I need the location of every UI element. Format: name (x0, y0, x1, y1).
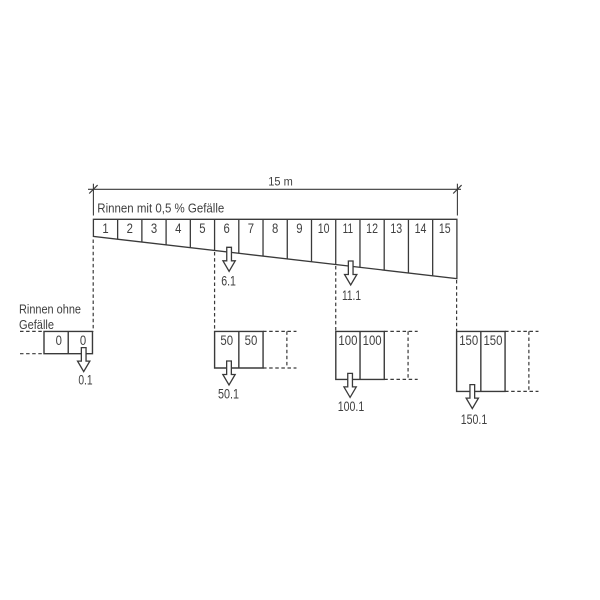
svg-text:150: 150 (459, 333, 478, 348)
svg-text:1: 1 (102, 221, 108, 236)
svg-text:7: 7 (248, 221, 254, 236)
svg-text:150: 150 (483, 333, 502, 348)
svg-text:11: 11 (343, 221, 354, 236)
svg-text:4: 4 (175, 221, 182, 236)
svg-text:15 m: 15 m (268, 175, 293, 189)
svg-text:10: 10 (318, 221, 330, 236)
svg-text:15: 15 (439, 221, 451, 236)
svg-text:Rinnen ohne: Rinnen ohne (19, 302, 81, 317)
svg-text:150.1: 150.1 (461, 412, 488, 427)
svg-text:100: 100 (363, 333, 382, 348)
svg-text:50.1: 50.1 (218, 387, 239, 402)
svg-text:Gefälle: Gefälle (19, 317, 54, 332)
svg-text:5: 5 (199, 221, 205, 236)
svg-text:6: 6 (224, 221, 230, 236)
svg-text:50: 50 (245, 333, 258, 348)
svg-text:100: 100 (338, 333, 357, 348)
svg-text:14: 14 (415, 221, 427, 236)
svg-text:6.1: 6.1 (221, 274, 236, 289)
svg-text:11.1: 11.1 (342, 288, 361, 303)
svg-text:3: 3 (151, 221, 157, 236)
svg-text:Rinnen mit 0,5 % Gefälle: Rinnen mit 0,5 % Gefälle (97, 201, 224, 216)
svg-text:2: 2 (127, 221, 133, 236)
svg-text:0: 0 (80, 333, 86, 348)
svg-text:8: 8 (272, 221, 278, 236)
svg-text:0: 0 (56, 333, 62, 348)
svg-text:12: 12 (366, 221, 378, 236)
svg-text:13: 13 (390, 221, 402, 236)
svg-text:9: 9 (296, 221, 302, 236)
svg-text:50: 50 (220, 333, 233, 348)
svg-text:100.1: 100.1 (338, 399, 365, 414)
svg-text:0.1: 0.1 (78, 372, 92, 387)
